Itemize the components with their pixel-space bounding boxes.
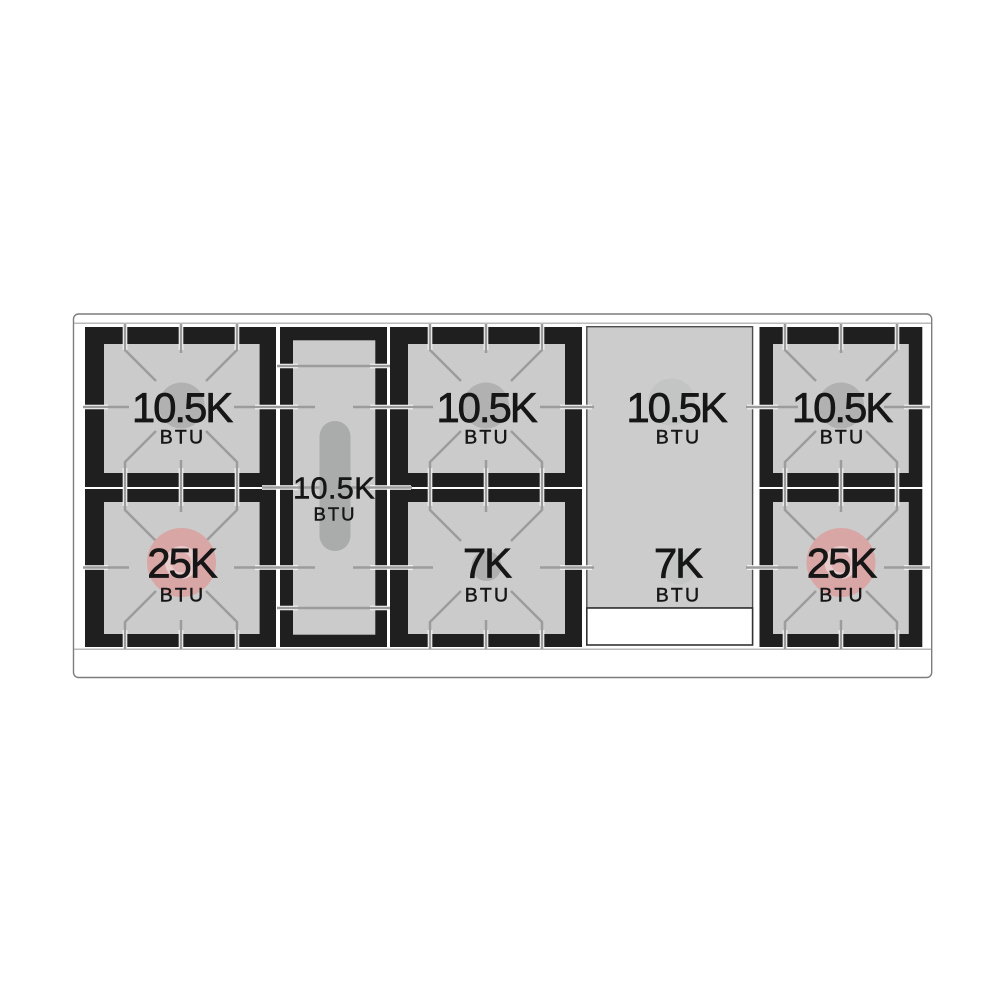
svg-text:10.5K: 10.5K [436, 384, 537, 431]
svg-text:BTU: BTU [160, 585, 206, 607]
svg-text:BTU: BTU [819, 585, 865, 607]
svg-text:BTU: BTU [314, 504, 357, 525]
svg-text:BTU: BTU [656, 585, 702, 607]
svg-text:BTU: BTU [656, 427, 702, 449]
svg-text:25K: 25K [147, 540, 218, 587]
svg-text:10.5K: 10.5K [132, 384, 233, 431]
svg-text:BTU: BTU [820, 427, 866, 449]
svg-text:BTU: BTU [464, 427, 510, 449]
svg-text:BTU: BTU [465, 585, 511, 607]
svg-text:10.5K: 10.5K [626, 384, 727, 431]
svg-text:7K: 7K [463, 540, 512, 587]
svg-text:7K: 7K [654, 540, 703, 587]
svg-text:25K: 25K [807, 540, 878, 587]
svg-text:10.5K: 10.5K [293, 471, 375, 506]
svg-text:BTU: BTU [160, 427, 206, 449]
svg-text:10.5K: 10.5K [792, 384, 893, 431]
